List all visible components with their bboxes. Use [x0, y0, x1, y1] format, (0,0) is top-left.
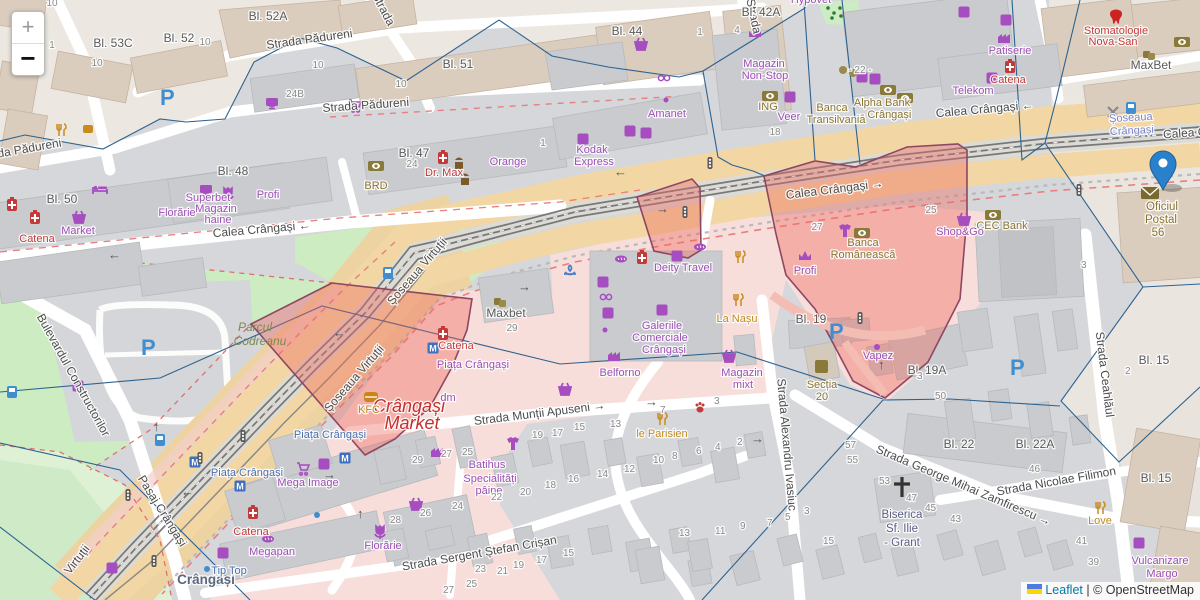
svg-text:Bl. 52A: Bl. 52A	[249, 9, 288, 23]
svg-text:18: 18	[545, 480, 557, 491]
svg-text:17: 17	[536, 555, 548, 566]
svg-text:Catena: Catena	[438, 340, 474, 352]
svg-text:27: 27	[811, 222, 823, 233]
svg-text:10: 10	[312, 60, 324, 71]
svg-text:Bl. 42A: Bl. 42A	[742, 5, 781, 19]
svg-text:- Grant: - Grant	[884, 537, 921, 549]
svg-text:Banca: Banca	[847, 237, 879, 249]
svg-text:P: P	[160, 85, 175, 110]
svg-text:2: 2	[1125, 366, 1131, 377]
svg-text:ING: ING	[758, 101, 778, 113]
svg-text:Bl. 51: Bl. 51	[443, 57, 474, 71]
svg-text:Market: Market	[384, 413, 440, 433]
svg-text:50: 50	[935, 391, 947, 402]
svg-text:Piața Crângași: Piața Crângași	[211, 467, 283, 479]
svg-text:27: 27	[441, 449, 453, 460]
svg-text:1: 1	[49, 40, 55, 51]
svg-text:1: 1	[697, 27, 703, 38]
svg-text:CEC Bank: CEC Bank	[976, 220, 1028, 232]
svg-text:- 22 -: - 22 -	[848, 65, 871, 76]
svg-text:Megapan: Megapan	[249, 546, 295, 558]
svg-text:10: 10	[46, 0, 58, 9]
svg-text:Bl. 50: Bl. 50	[47, 192, 78, 206]
svg-text:Bl. 19: Bl. 19	[796, 312, 827, 326]
svg-text:10: 10	[653, 455, 665, 466]
svg-text:15: 15	[574, 422, 586, 433]
svg-text:Românească: Românească	[831, 249, 897, 261]
svg-text:Bl. 47: Bl. 47	[399, 146, 430, 160]
svg-text:19: 19	[532, 430, 544, 441]
svg-text:Veer: Veer	[778, 111, 801, 123]
svg-text:46: 46	[1029, 464, 1041, 475]
svg-text:Vulcanizare: Vulcanizare	[1131, 555, 1188, 567]
svg-text:20: 20	[520, 487, 532, 498]
svg-text:dm: dm	[440, 392, 455, 404]
svg-text:Love: Love	[1088, 515, 1112, 527]
svg-text:Bl. 22: Bl. 22	[944, 437, 975, 451]
svg-text:Șoseaua: Șoseaua	[1109, 111, 1154, 125]
svg-text:Biserica: Biserica	[882, 509, 924, 521]
svg-text:10: 10	[395, 79, 407, 90]
svg-text:Hypovet: Hypovet	[791, 0, 831, 6]
svg-text:Bl. 44: Bl. 44	[612, 24, 643, 38]
svg-text:4: 4	[715, 442, 721, 453]
svg-text:Margo: Margo	[1146, 568, 1177, 580]
svg-text:Calea C: Calea C	[1163, 124, 1200, 141]
svg-text:53: 53	[879, 476, 891, 487]
svg-text:Catena: Catena	[19, 233, 55, 245]
svg-text:43: 43	[950, 514, 962, 525]
svg-text:P: P	[829, 319, 844, 344]
svg-text:Maxbet: Maxbet	[486, 306, 526, 320]
svg-text:Belforno: Belforno	[600, 367, 641, 379]
svg-text:Orange: Orange	[490, 156, 527, 168]
svg-text:↑: ↑	[153, 419, 160, 434]
svg-text:Kodak: Kodak	[576, 144, 608, 156]
svg-text:haine: haine	[205, 214, 232, 226]
svg-text:Sf. Ilie: Sf. Ilie	[886, 523, 918, 535]
svg-text:Florărie: Florărie	[364, 540, 401, 552]
svg-text:7: 7	[767, 518, 773, 529]
svg-text:39: 39	[1088, 557, 1100, 568]
svg-text:24: 24	[452, 501, 464, 512]
svg-text:24: 24	[406, 159, 418, 170]
svg-text:Crângași: Crângași	[642, 344, 686, 356]
svg-text:mixt: mixt	[733, 379, 753, 391]
svg-text:Bl. 22A: Bl. 22A	[1016, 437, 1055, 451]
svg-text:→: →	[645, 394, 658, 409]
svg-text:Codreanu: Codreanu	[234, 334, 287, 348]
svg-text:P: P	[1010, 355, 1025, 380]
svg-text:←: ←	[108, 247, 121, 262]
svg-text:6: 6	[696, 446, 702, 457]
svg-text:11: 11	[715, 526, 726, 537]
svg-text:Magazin: Magazin	[721, 367, 763, 379]
svg-text:Comerciale: Comerciale	[632, 332, 688, 344]
svg-text:41: 41	[1076, 536, 1088, 547]
svg-text:←: ←	[333, 325, 346, 340]
svg-text:9: 9	[740, 521, 746, 532]
svg-text:le Parisien: le Parisien	[636, 428, 687, 440]
svg-text:Bl. 19A: Bl. 19A	[908, 363, 947, 377]
svg-text:Crângași: Crângași	[1110, 124, 1155, 138]
svg-text:Specialități: Specialități	[463, 473, 516, 485]
svg-text:4: 4	[734, 25, 740, 36]
svg-text:28: 28	[390, 515, 402, 526]
svg-text:10: 10	[91, 58, 103, 69]
svg-text:Piața Crângași: Piața Crângași	[437, 359, 509, 371]
svg-text:Piața Crângași: Piața Crângași	[294, 429, 366, 441]
svg-text:2: 2	[737, 437, 743, 448]
svg-text:3: 3	[1081, 260, 1087, 271]
svg-text:Bl. 53C: Bl. 53C	[93, 36, 133, 50]
svg-text:Oficiul: Oficiul	[1146, 201, 1178, 213]
svg-text:10: 10	[199, 37, 211, 48]
svg-text:22: 22	[491, 492, 503, 503]
svg-text:Profi: Profi	[794, 265, 817, 277]
svg-text:23: 23	[475, 564, 487, 575]
svg-text:47: 47	[906, 493, 918, 504]
svg-text:Bl. 15: Bl. 15	[1139, 353, 1170, 367]
svg-text:15: 15	[563, 548, 575, 559]
svg-text:13: 13	[679, 528, 691, 539]
svg-text:25: 25	[466, 579, 478, 590]
svg-text:Telekom: Telekom	[953, 85, 994, 97]
svg-text:12: 12	[624, 464, 636, 475]
svg-text:17: 17	[552, 428, 564, 439]
svg-text:Shop&Go: Shop&Go	[936, 226, 984, 238]
svg-text:BRD: BRD	[364, 180, 387, 192]
svg-text:Tip Top: Tip Top	[211, 565, 246, 577]
svg-text:Magazin: Magazin	[743, 58, 785, 70]
svg-text:Florărie: Florărie	[158, 207, 195, 219]
svg-text:Patiserie: Patiserie	[989, 45, 1032, 57]
svg-text:Profi: Profi	[257, 189, 280, 201]
svg-text:Bl. 48: Bl. 48	[218, 164, 249, 178]
svg-text:57: 57	[845, 440, 857, 451]
svg-text:Express: Express	[574, 156, 614, 168]
svg-text:↑: ↑	[357, 506, 364, 521]
svg-text:3: 3	[714, 396, 720, 407]
svg-text:→: →	[751, 431, 764, 446]
svg-text:3: 3	[804, 506, 810, 517]
svg-text:25: 25	[462, 447, 474, 458]
svg-text:26: 26	[420, 508, 432, 519]
svg-text:Banca: Banca	[816, 102, 848, 114]
svg-text:Secția: Secția	[807, 379, 838, 391]
svg-text:Dr. Max: Dr. Max	[425, 167, 463, 179]
svg-text:←: ←	[614, 164, 627, 179]
svg-text:Market: Market	[61, 225, 95, 237]
svg-text:15: 15	[823, 536, 835, 547]
svg-text:8: 8	[672, 451, 678, 462]
svg-text:29: 29	[412, 455, 424, 466]
svg-text:Transilvania: Transilvania	[807, 114, 867, 126]
svg-text:Catena: Catena	[233, 526, 269, 538]
svg-text:→: →	[518, 279, 531, 294]
svg-text:Catena: Catena	[990, 74, 1026, 86]
svg-text:16: 16	[568, 474, 580, 485]
svg-text:24B: 24B	[286, 89, 304, 100]
svg-text:27: 27	[443, 585, 455, 596]
svg-text:20: 20	[816, 391, 828, 403]
svg-text:45: 45	[925, 503, 937, 514]
svg-text:←: ←	[181, 484, 194, 499]
svg-text:21: 21	[497, 566, 509, 577]
svg-text:3: 3	[917, 371, 923, 382]
svg-text:→: →	[656, 201, 669, 216]
svg-text:Parcul: Parcul	[238, 320, 272, 334]
svg-text:Batihus: Batihus	[469, 459, 506, 471]
svg-text:P: P	[141, 335, 156, 360]
svg-text:29: 29	[506, 323, 518, 334]
svg-text:7: 7	[660, 405, 666, 416]
svg-text:Bl. 15: Bl. 15	[1141, 471, 1172, 485]
svg-text:La Nașu: La Nașu	[717, 313, 758, 325]
svg-text:MaxBet: MaxBet	[1131, 58, 1172, 72]
svg-text:55: 55	[847, 455, 859, 466]
svg-text:Nova-San: Nova-San	[1089, 36, 1138, 48]
svg-text:Non-Stop: Non-Stop	[742, 70, 788, 82]
svg-text:Bl. 52: Bl. 52	[164, 31, 195, 45]
svg-text:KFC: KFC	[358, 404, 380, 416]
svg-text:19: 19	[513, 560, 525, 571]
svg-text:Poștal: Poștal	[1145, 214, 1177, 226]
svg-text:14: 14	[597, 469, 609, 480]
svg-text:13: 13	[610, 419, 622, 430]
svg-text:Deity Travel: Deity Travel	[654, 262, 712, 274]
svg-text:Galeriile: Galeriile	[642, 320, 682, 332]
svg-text:- Crângași: - Crângași	[861, 109, 912, 121]
svg-text:18: 18	[769, 127, 781, 138]
svg-text:5: 5	[785, 512, 791, 523]
svg-text:↑: ↑	[878, 357, 885, 372]
svg-text:Amanet: Amanet	[648, 108, 686, 120]
svg-text:Alpha Bank: Alpha Bank	[854, 97, 911, 109]
svg-text:→: →	[323, 467, 336, 482]
svg-text:1: 1	[540, 138, 546, 149]
svg-text:56: 56	[1152, 227, 1165, 239]
svg-text:25: 25	[925, 205, 937, 216]
